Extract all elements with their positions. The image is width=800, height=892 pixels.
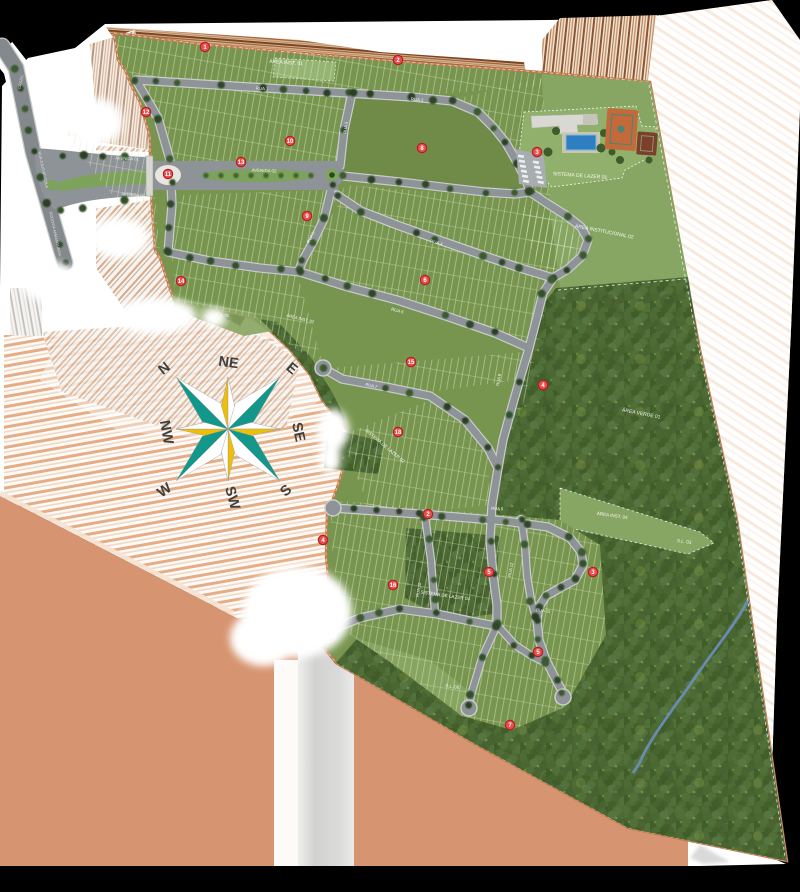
svg-text:12: 12 bbox=[143, 110, 150, 116]
svg-text:13: 13 bbox=[238, 160, 245, 166]
svg-text:15: 15 bbox=[408, 360, 415, 366]
svg-text:RUA 9: RUA 9 bbox=[491, 506, 504, 512]
svg-text:11: 11 bbox=[165, 172, 172, 178]
svg-text:RUA 1: RUA 1 bbox=[256, 86, 269, 92]
svg-text:AVENIDA 02: AVENIDA 02 bbox=[252, 168, 278, 174]
svg-text:18: 18 bbox=[395, 430, 402, 436]
svg-text:16: 16 bbox=[390, 583, 397, 589]
svg-text:14: 14 bbox=[178, 279, 185, 285]
svg-text:NE: NE bbox=[217, 354, 239, 373]
svg-text:10: 10 bbox=[287, 139, 294, 145]
